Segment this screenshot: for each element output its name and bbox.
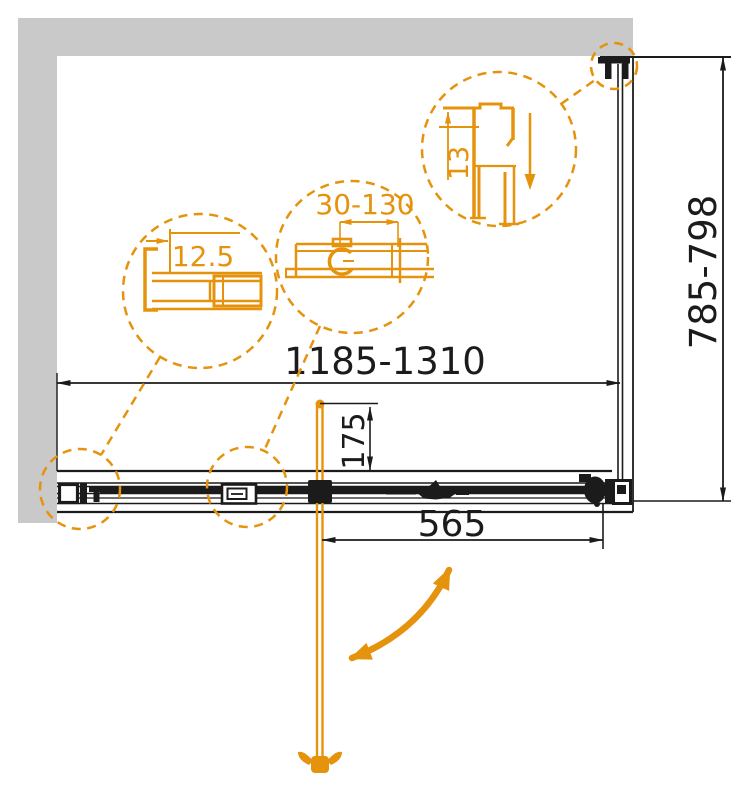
hardware-adjustment-profile-end: [222, 485, 256, 504]
detail-adjustment-profile: 30-130: [285, 188, 434, 283]
detail-top-profile: 13: [439, 104, 536, 224]
dimension-door-width: 565: [322, 504, 603, 549]
detail-wall-profile: 12.5: [145, 229, 262, 310]
dimension-overall-height: 785-798: [682, 57, 725, 501]
leader-top-right: [561, 80, 595, 104]
door-swing-arrow: [352, 570, 449, 658]
detail-top-profile-label: 13: [444, 146, 475, 180]
slide-direction-arrowhead: [525, 174, 536, 190]
stabilizer-bar: [298, 400, 342, 774]
technical-drawing-page: 1185-1310 785-798 175 565: [0, 0, 749, 800]
bar-offset-label: 175: [337, 412, 372, 469]
dimension-bar-offset: 175: [320, 404, 378, 471]
bar-foot-bracket: [298, 752, 342, 773]
leader-left: [101, 357, 160, 455]
detail-adjustment-label: 30-130: [315, 188, 414, 221]
shower-enclosure-diagram: 1185-1310 785-798 175 565: [0, 0, 749, 800]
overall-width-label: 1185-1310: [284, 340, 486, 383]
rail-track-band-left: [100, 487, 222, 494]
top-right-bracket: [598, 57, 630, 79]
wall-surface: [18, 18, 633, 523]
wall: [18, 18, 633, 523]
door-width-label: 565: [418, 504, 487, 545]
detail-wall-profile-label: 12.5: [172, 240, 234, 273]
overall-height-label: 785-798: [682, 195, 725, 350]
bar-rail-connector: [308, 480, 332, 503]
